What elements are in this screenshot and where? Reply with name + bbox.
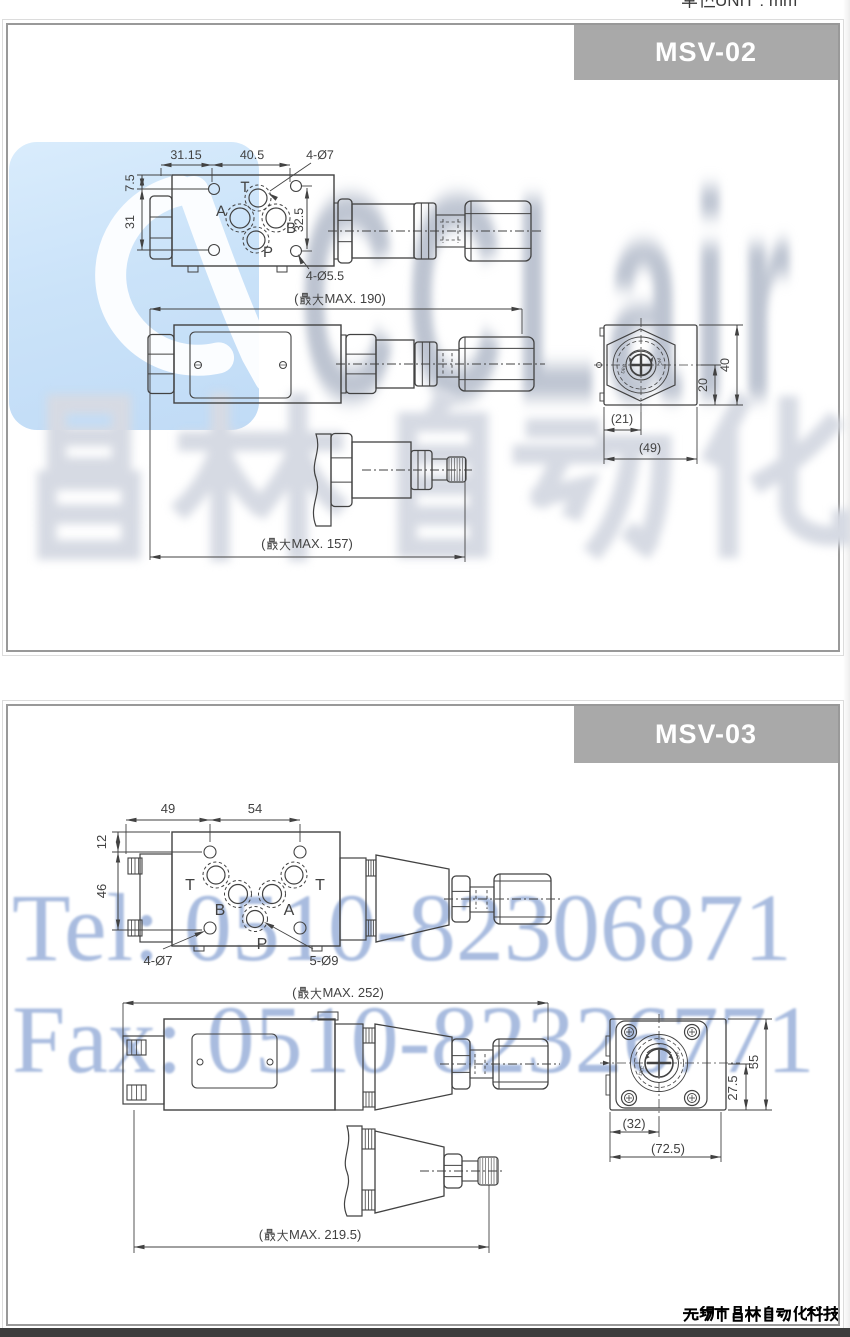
svg-text:T: T [185,877,195,894]
svg-text:27.5: 27.5 [725,1075,740,1100]
svg-text:T: T [315,877,325,894]
svg-text:4-Ø5.5: 4-Ø5.5 [306,269,344,283]
svg-text:MAX. 252): MAX. 252) [322,985,383,1000]
svg-text:(: ( [294,291,299,306]
svg-text:DEC: DEC [620,363,627,374]
svg-text:49: 49 [161,801,175,816]
svg-text:(: ( [261,536,266,551]
svg-text:INC: INC [673,1051,681,1061]
svg-text:(21): (21) [611,412,633,426]
svg-text:31: 31 [123,215,137,229]
svg-text:T: T [240,179,249,196]
svg-text:4-Ø7: 4-Ø7 [306,148,334,162]
svg-text:7.5: 7.5 [123,174,137,191]
svg-text:(32): (32) [622,1116,645,1131]
svg-text:20: 20 [696,378,710,392]
svg-text:(: ( [259,1227,264,1242]
svg-text:54: 54 [248,801,262,816]
svg-text:MAX. 219.5): MAX. 219.5) [289,1227,361,1242]
svg-text:(: ( [292,985,297,1000]
svg-text:B: B [215,902,226,919]
svg-text:32.5: 32.5 [292,208,306,232]
svg-text:P: P [263,244,273,261]
svg-text:P: P [257,936,268,953]
svg-text:12: 12 [94,835,109,849]
svg-text:(49): (49) [639,441,661,455]
svg-text:MAX. 157): MAX. 157) [291,536,352,551]
svg-text:55: 55 [746,1055,761,1069]
svg-text:MAX. 190): MAX. 190) [324,291,385,306]
svg-text:DEC: DEC [638,1065,647,1077]
svg-text:40.5: 40.5 [240,148,264,162]
svg-text:5-Ø9: 5-Ø9 [310,953,339,968]
svg-text:A: A [284,902,295,919]
svg-text:4-Ø7: 4-Ø7 [144,953,173,968]
svg-text:46: 46 [94,884,109,898]
svg-text:31.15: 31.15 [170,148,201,162]
svg-text:(72.5): (72.5) [651,1141,685,1156]
svg-text:A: A [216,203,226,220]
